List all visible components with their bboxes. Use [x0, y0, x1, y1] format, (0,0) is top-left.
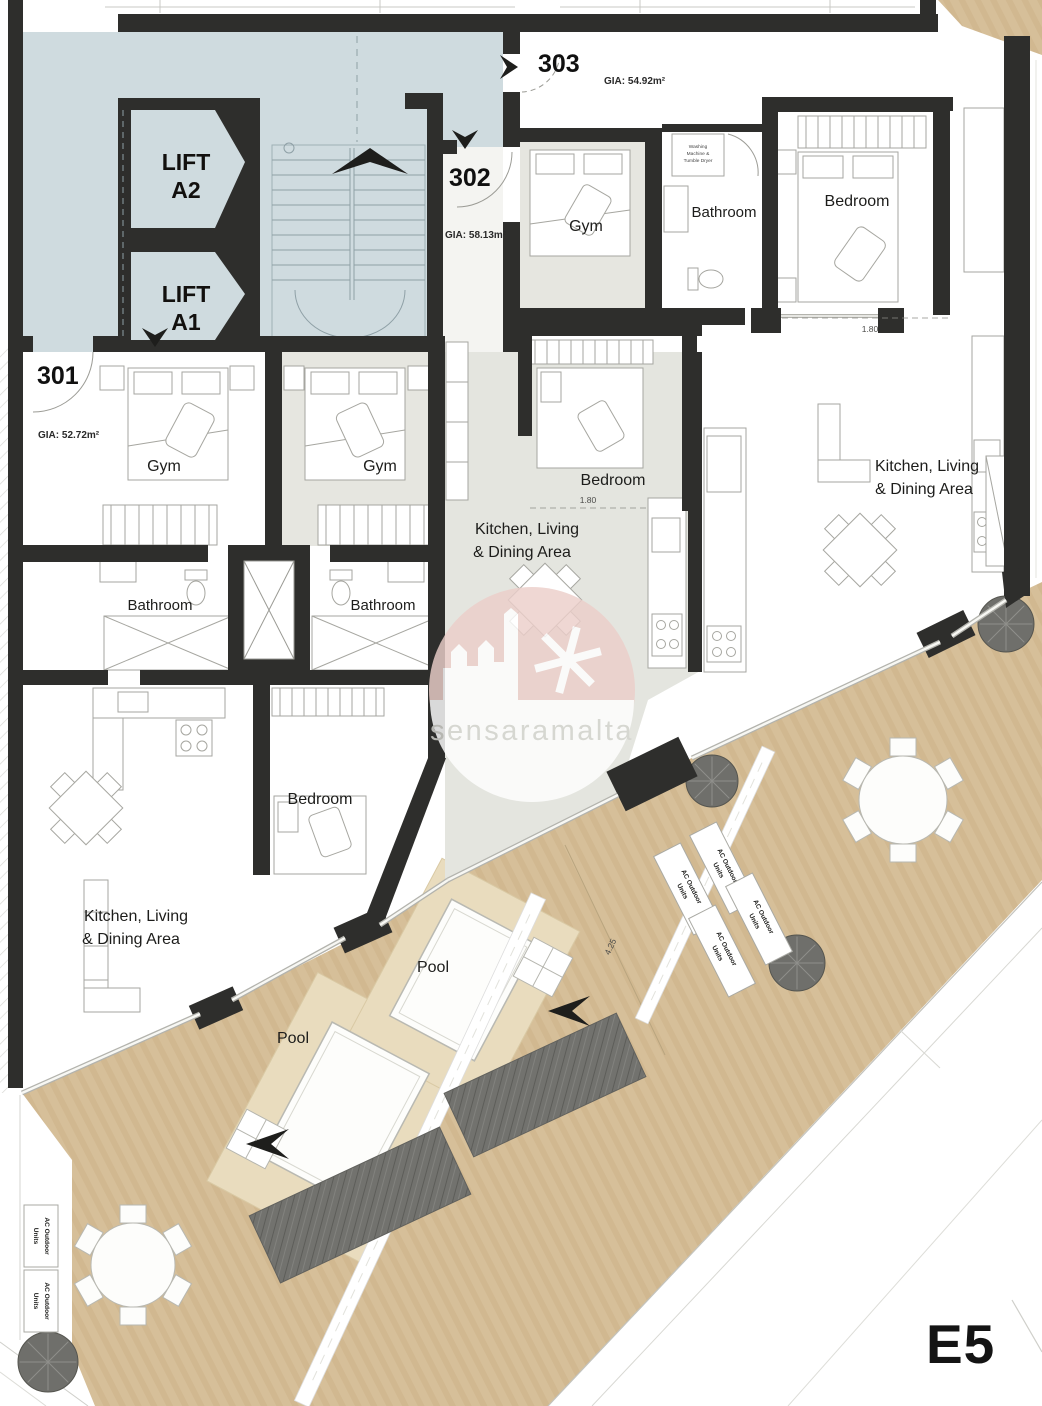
room-label-kitchen: Kitchen, Living — [84, 908, 188, 925]
bed — [537, 368, 643, 468]
room-label-kitchen2: & Dining Area — [875, 481, 973, 498]
washer-closet: Washing Machine & Tumble Dryer — [672, 134, 724, 176]
nightstand — [100, 366, 124, 390]
stove-icon — [176, 720, 212, 756]
unit-303-gia: GIA: 54.92m² — [604, 76, 666, 87]
unit-301-gia: GIA: 52.72m² — [38, 430, 100, 441]
room-label-bedroom: Bedroom — [825, 193, 890, 210]
svg-text:AC Outdoor: AC Outdoor — [43, 1282, 50, 1320]
unit-303-number: 303 — [538, 50, 580, 78]
room-label-kitchen: Kitchen, Living — [875, 458, 979, 475]
kitchen-counter — [648, 498, 686, 668]
room-label-bedroom: Bedroom — [288, 791, 353, 808]
stove-icon — [707, 626, 741, 662]
toilet — [688, 268, 723, 290]
wardrobe — [527, 340, 653, 364]
tree-icon — [686, 755, 738, 807]
service-shaft — [244, 561, 294, 659]
plan-code-label: E5 — [926, 1313, 995, 1375]
ac-outdoor-unit: AC Outdoor Units — [24, 1270, 58, 1332]
room-label-gym: Gym — [147, 458, 181, 475]
room-label-pool: Pool — [417, 959, 449, 976]
lift-a2-label2: A2 — [171, 177, 200, 203]
lift-a2-label: LIFT — [162, 149, 211, 175]
tree-icon — [18, 1332, 78, 1392]
nightstand — [230, 366, 254, 390]
room-label-gym: Gym — [569, 218, 603, 235]
nightstand — [284, 366, 304, 390]
room-label-bathroom: Bathroom — [350, 597, 415, 614]
ac-outdoor-unit: AC Outdoor Units — [24, 1205, 58, 1267]
stove-icon — [652, 614, 682, 656]
closet — [272, 688, 384, 716]
room-label-gym: Gym — [363, 458, 397, 475]
svg-text:Machine &: Machine & — [687, 151, 710, 157]
svg-text:Washing: Washing — [689, 144, 708, 150]
room-label-pool: Pool — [277, 1030, 309, 1047]
wardrobe — [798, 116, 926, 148]
nightstand — [408, 366, 430, 390]
bed — [798, 152, 898, 302]
room-label-kitchen2: & Dining Area — [82, 931, 180, 948]
room-label-bathroom: Bathroom — [127, 597, 192, 614]
lift-a1-label: LIFT — [162, 281, 211, 307]
toilet — [330, 570, 352, 605]
shower — [312, 616, 440, 670]
floor-plan-page: 4.25 — [0, 0, 1042, 1406]
watermark-text: sensaramalta — [430, 715, 634, 747]
room-label-bathroom: Bathroom — [691, 204, 756, 221]
bedroom-302-width: 1.80 — [580, 495, 597, 505]
svg-text:Tumble Dryer: Tumble Dryer — [684, 158, 713, 164]
room-label-bedroom: Bedroom — [581, 472, 646, 489]
wardrobe — [103, 505, 217, 545]
sink — [664, 186, 688, 232]
shower — [104, 616, 232, 670]
lift-a1-label2: A1 — [171, 309, 201, 335]
adjacent-property-hatch — [0, 348, 9, 1093]
floor-plan-canvas: 4.25 — [0, 0, 1042, 1406]
sofa — [446, 342, 468, 500]
wardrobe — [318, 505, 432, 545]
sink — [100, 560, 136, 582]
svg-text:Units: Units — [32, 1228, 39, 1245]
kitchen-counter — [704, 428, 746, 672]
bedroom-303-width: 1.80 — [862, 324, 879, 334]
unit-301-number: 301 — [37, 362, 79, 390]
unit-302-gia: GIA: 58.13m² — [445, 230, 507, 241]
svg-text:AC Outdoor: AC Outdoor — [43, 1217, 50, 1255]
room-label-kitchen: Kitchen, Living — [475, 521, 579, 538]
logo-watermark: sensaramalta — [429, 587, 635, 802]
unit-302-number: 302 — [449, 164, 491, 192]
bed — [530, 150, 630, 256]
svg-text:Units: Units — [32, 1293, 39, 1310]
room-label-kitchen2: & Dining Area — [473, 544, 571, 561]
sink — [388, 560, 424, 582]
